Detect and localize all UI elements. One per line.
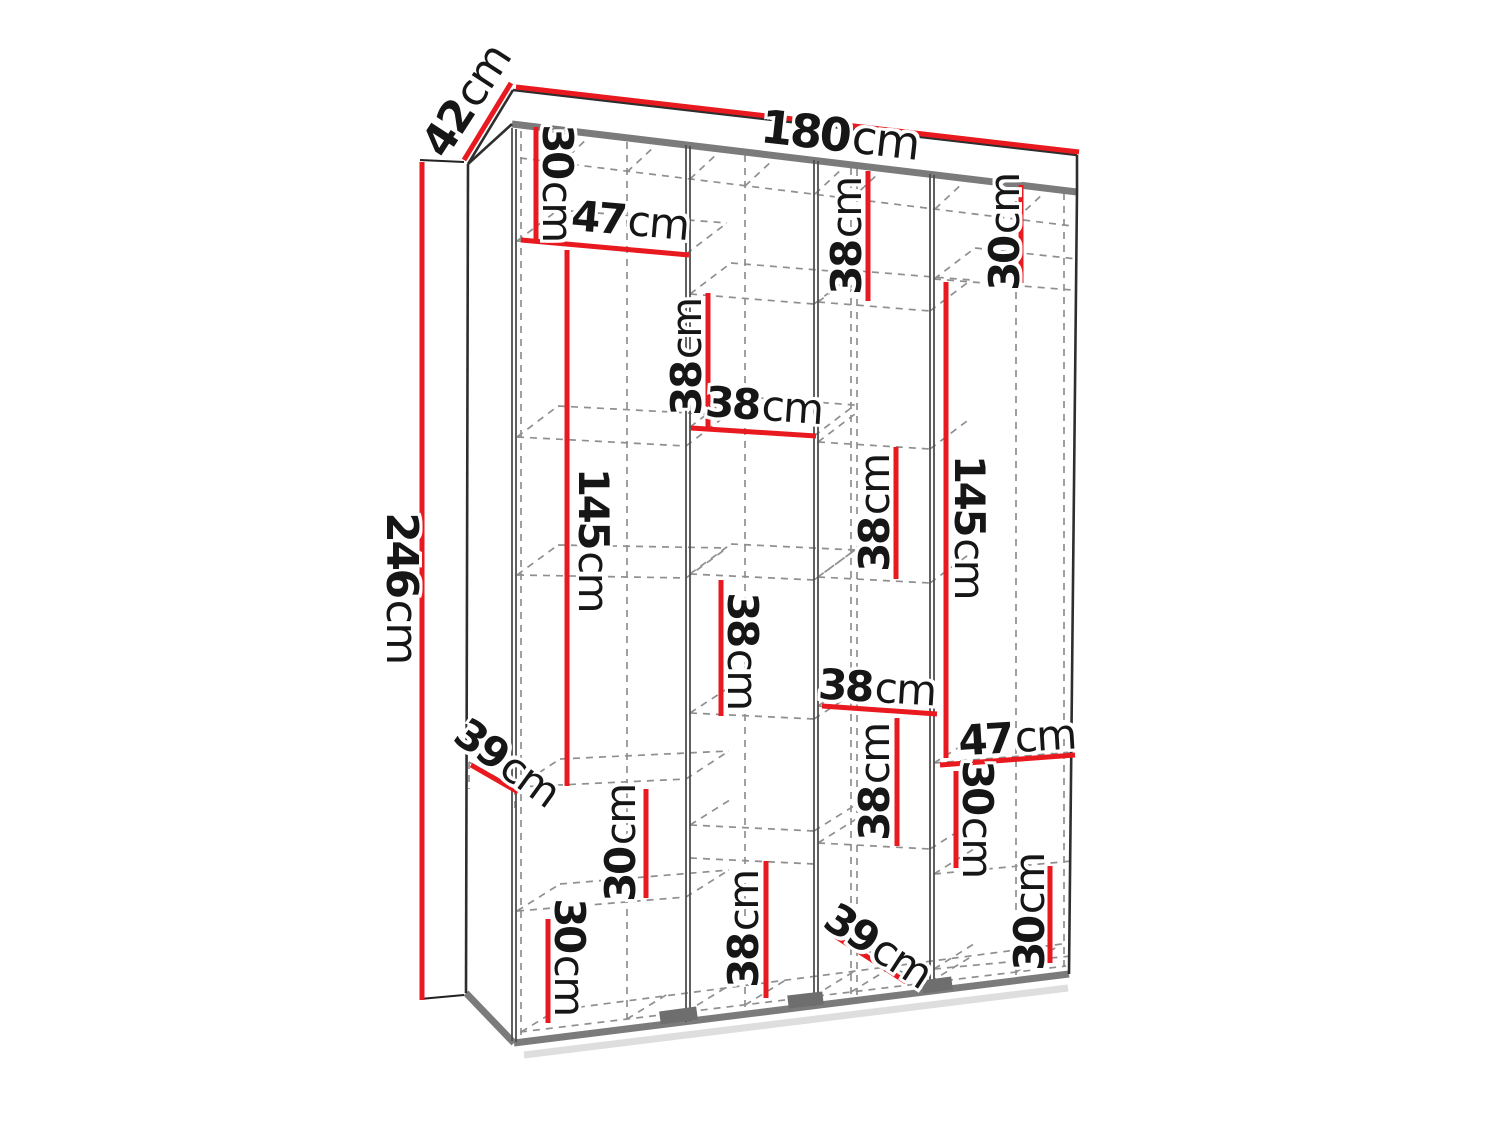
dashed-construction-line [690,798,733,825]
dashed-construction-line [934,279,1072,290]
dashed-construction-line [517,897,686,911]
dashed-construction-line [930,822,973,849]
dimension-tick [420,160,464,162]
dashed-construction-line [686,751,729,779]
dimension-line [940,755,1075,765]
dashed-construction-line [517,779,686,787]
dimension-line [521,240,689,255]
dashed-construction-line [930,553,971,583]
dashed-construction-line [558,210,727,223]
dashed-construction-line [975,248,1077,259]
dashed-construction-line [934,248,975,279]
dashed-construction-line [731,544,855,550]
foot [922,983,952,987]
dashed-construction-line [690,685,733,713]
dashed-construction-line [517,884,560,911]
panel-edge-thick [466,993,514,1043]
outline-edge [1069,192,1077,974]
dashed-construction-line [690,858,814,864]
dashed-construction-line [686,870,729,897]
dashed-construction-line [690,825,814,831]
dashed-construction-line [930,280,971,311]
dashed-construction-line [517,545,558,575]
dashed-construction-line [521,1005,565,1032]
diagram-svg [0,0,1500,1125]
dashed-construction-line [690,574,814,580]
dashed-construction-line [818,816,861,843]
dashed-construction-line [934,736,977,763]
dashed-construction-line [814,804,857,831]
dashed-construction-line [818,843,930,849]
dashed-construction-line [731,396,855,405]
dimension-tick [420,995,464,999]
dimension-line [471,765,518,792]
outline-edge [466,164,468,993]
dashed-construction-line [834,929,905,974]
dashed-construction-line [558,406,727,415]
dashed-construction-line [690,544,731,574]
dimension-line [691,428,816,436]
dashed-construction-line [517,575,686,578]
dashed-construction-line [818,442,930,449]
wardrobe-dimension-diagram: 42cm180cm246cm30cm47cm145cm39cm30cm30cm3… [0,0,1500,1125]
dashed-construction-line [859,271,971,280]
dimension-line [822,706,937,714]
dashed-construction-line [517,406,558,437]
dashed-construction-line [935,183,963,209]
dashed-construction-line [731,263,855,273]
dashed-construction-line [686,223,727,254]
foot [788,998,823,1002]
foot [660,1013,697,1018]
dashed-construction-line [690,263,731,294]
dashed-construction-line [818,577,930,583]
dashed-construction-line [930,418,971,449]
dashed-construction-line [517,759,560,787]
dashed-construction-line [560,751,729,759]
dashed-construction-line [818,302,930,311]
dimension-line [835,936,906,982]
dashed-construction-line [517,437,686,446]
dashed-construction-line [558,545,727,548]
panel-edge-thick [514,974,1069,1043]
dashed-construction-line [814,405,855,436]
dashed-construction-line [818,411,859,442]
dashed-construction-line [690,713,814,719]
